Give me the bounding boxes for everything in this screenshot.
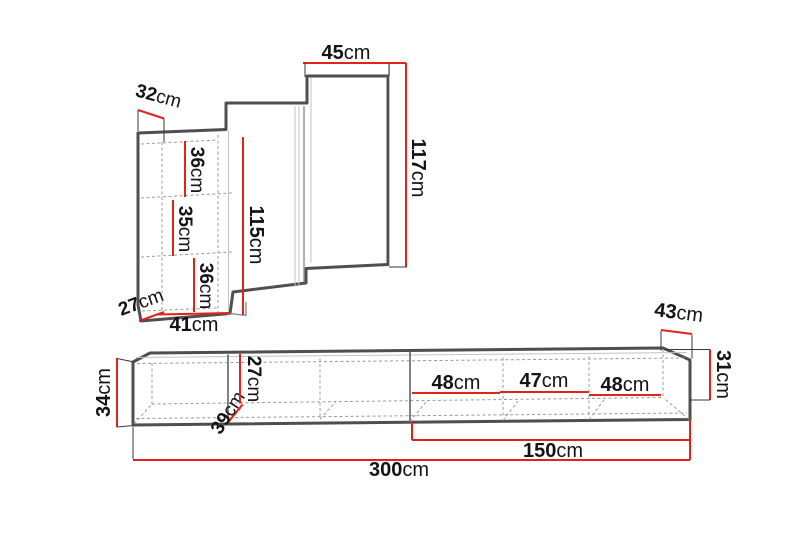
dimension-line-32	[138, 110, 164, 119]
dim-label-300cm: 300cm	[369, 459, 429, 481]
dim-right-height-117: 117cm	[389, 63, 429, 267]
dim-label-47cm: 47cm	[520, 370, 569, 392]
dim-bench-left-height-34: 34cm	[93, 358, 134, 427]
dim-shelf-top-36: 36cm	[185, 141, 207, 197]
dim-label-43cm: 43cm	[653, 299, 704, 327]
dim-label-36cm-top: 36cm	[186, 147, 207, 193]
dim-shelf-bottom-36: 36cm	[194, 258, 216, 312]
dim-label-27cm-bench: 27cm	[243, 356, 264, 402]
dim-shelf-middle-35: 35cm	[173, 200, 195, 256]
dim-label-36cm-bottom: 36cm	[195, 263, 216, 309]
dim-label-32cm: 32cm	[133, 81, 183, 113]
dim-right-section-150: 150cm	[412, 420, 690, 463]
dim-label-117cm: 117cm	[407, 139, 429, 198]
dim-label-48cm-1: 48cm	[432, 372, 481, 394]
dimension-line-43	[661, 330, 692, 334]
dim-label-48cm-2: 48cm	[601, 374, 650, 396]
dim-label-35cm: 35cm	[174, 206, 195, 252]
furniture-dimension-page: 45cm 117cm 32cm 115cm 36cm 35cm 36c	[0, 0, 800, 533]
wall-unit-outline	[138, 76, 388, 321]
dim-label-41cm: 41cm	[170, 314, 219, 336]
dim-label-115cm: 115cm	[245, 206, 267, 265]
dim-label-150cm: 150cm	[523, 440, 583, 462]
dim-label-45cm: 45cm	[322, 42, 371, 64]
dim-bench-inner-height-27: 27cm	[240, 354, 264, 404]
tick	[117, 426, 134, 428]
dim-label-31cm: 31cm	[712, 350, 734, 399]
dim-label-34cm: 34cm	[93, 368, 115, 417]
wall-unit-diagram: 45cm 117cm 32cm 115cm 36cm 35cm 36c	[116, 42, 429, 336]
dim-bottom-width-41: 41cm	[158, 313, 230, 336]
dim-top-width-45: 45cm	[303, 42, 406, 77]
furniture-dimension-diagram: 45cm 117cm 32cm 115cm 36cm 35cm 36c	[0, 0, 800, 533]
tick	[117, 359, 134, 363]
